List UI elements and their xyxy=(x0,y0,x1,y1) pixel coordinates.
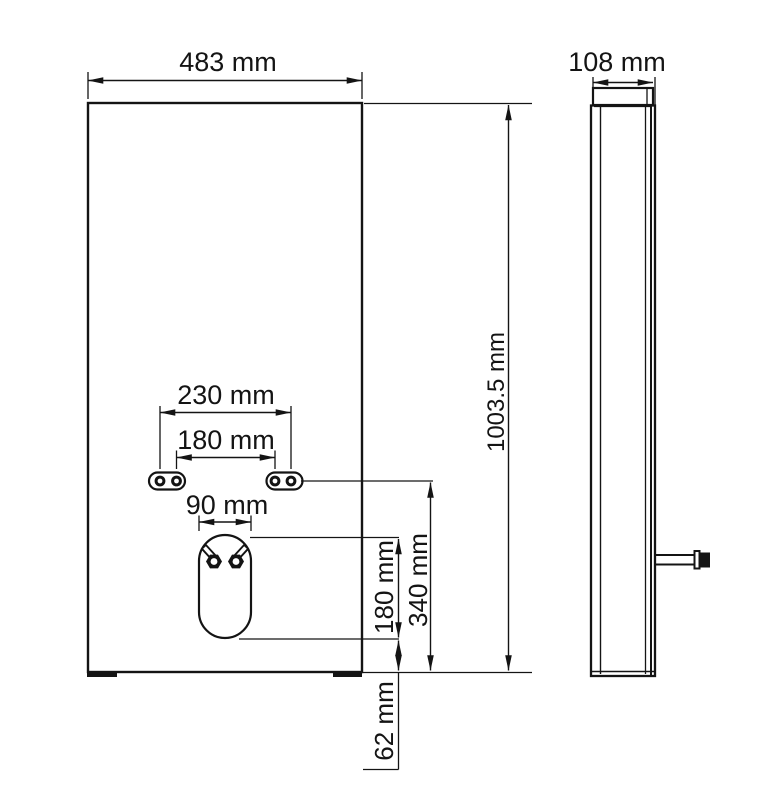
pipe-end-cap xyxy=(700,553,711,568)
sanitary-module-drawing: 483 mm 1003.5 mm 2 xyxy=(0,0,769,800)
connection-opening xyxy=(199,535,251,638)
dim-opening-height-label: 180 mm xyxy=(369,540,399,634)
hex-fitting-left-bore xyxy=(211,558,218,565)
technical-drawing-canvas: 483 mm 1003.5 mm 2 xyxy=(0,0,769,800)
anchor-hole-center xyxy=(174,479,179,484)
dim-anchor-to-bottom-label: 340 mm xyxy=(403,533,433,627)
anchor-hole-center xyxy=(289,479,294,484)
anchor-hole-center xyxy=(273,479,278,484)
outlet-pipe xyxy=(655,551,710,569)
front-view: 483 mm 1003.5 mm 2 xyxy=(87,47,532,770)
dim-overall-height: 1003.5 mm xyxy=(336,104,532,673)
dim-anchor-spacing-inner-label: 180 mm xyxy=(177,425,275,455)
dim-anchor-spacing-outer-label: 230 mm xyxy=(177,380,275,410)
side-view: 108 mm xyxy=(568,47,710,676)
dim-opening-to-bottom-label: 62 mm xyxy=(369,681,399,760)
dim-overall-height-label: 1003.5 mm xyxy=(483,332,510,452)
dim-opening-to-bottom: 62 mm xyxy=(363,641,399,770)
hex-fitting-right-bore xyxy=(233,558,240,565)
pipe-flange xyxy=(695,551,700,569)
anchor-hole-center xyxy=(158,479,163,484)
panel-foot-left xyxy=(87,672,117,678)
dim-opening-width-label: 90 mm xyxy=(186,490,269,520)
dim-anchor-to-bottom: 340 mm xyxy=(403,483,433,671)
dim-depth-label: 108 mm xyxy=(568,47,666,77)
side-top-cap xyxy=(593,88,653,105)
dim-overall-width: 483 mm xyxy=(88,47,362,99)
dim-overall-width-label: 483 mm xyxy=(179,47,277,77)
